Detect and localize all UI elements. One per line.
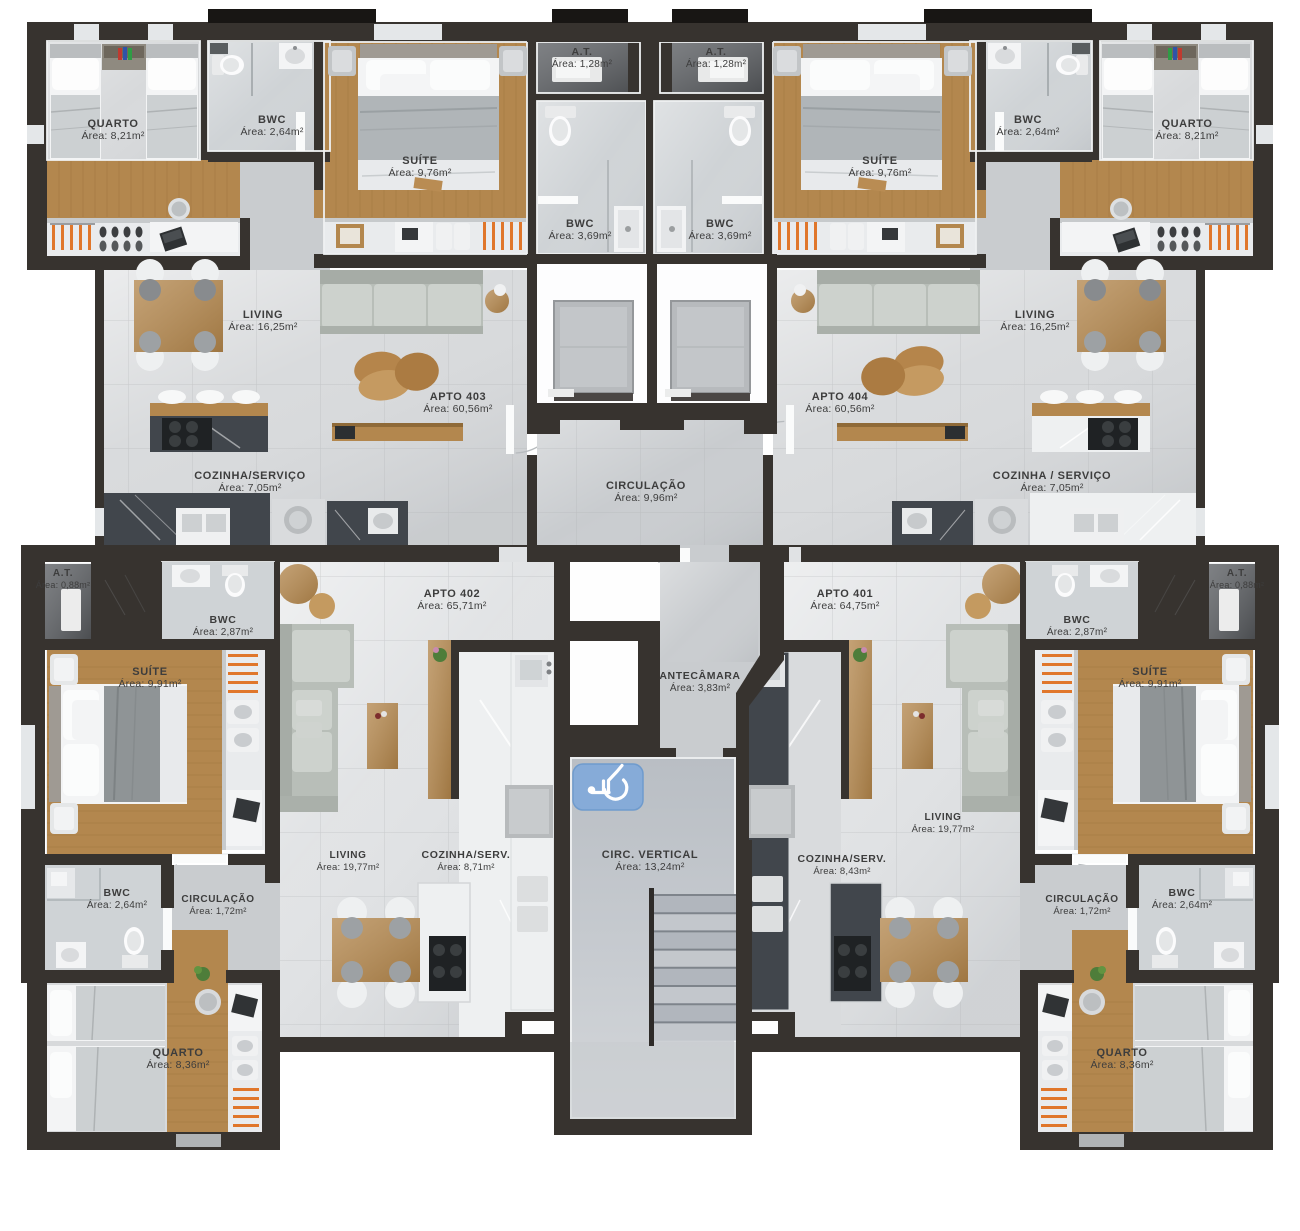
svg-text:APTO 402: APTO 402	[424, 588, 481, 600]
svg-text:Área: 2,87m²: Área: 2,87m²	[1047, 625, 1108, 638]
svg-text:LIVING: LIVING	[243, 309, 283, 321]
svg-text:Área: 8,43m²: Área: 8,43m²	[813, 866, 870, 877]
svg-text:Área: 0,88m²: Área: 0,88m²	[36, 580, 90, 590]
svg-text:ANTECÂMARA: ANTECÂMARA	[659, 669, 740, 682]
svg-text:QUARTO: QUARTO	[87, 118, 138, 130]
svg-text:Área: 1,28m²: Área: 1,28m²	[552, 57, 613, 70]
svg-text:Área: 8,21m²: Área: 8,21m²	[81, 129, 144, 142]
svg-text:BWC: BWC	[1169, 887, 1196, 899]
svg-text:Área: 7,05m²: Área: 7,05m²	[1020, 481, 1083, 494]
svg-text:SUÍTE: SUÍTE	[862, 154, 897, 167]
svg-text:A.T.: A.T.	[53, 568, 73, 579]
svg-text:QUARTO: QUARTO	[152, 1047, 203, 1059]
svg-text:Área: 2,64m²: Área: 2,64m²	[996, 125, 1059, 138]
svg-text:BWC: BWC	[258, 114, 286, 126]
svg-text:Área: 60,56m²: Área: 60,56m²	[805, 402, 874, 415]
svg-text:Área: 8,36m²: Área: 8,36m²	[146, 1058, 209, 1071]
svg-text:CIRCULAÇÃO: CIRCULAÇÃO	[606, 479, 686, 492]
svg-text:Área: 8,36m²: Área: 8,36m²	[1090, 1058, 1153, 1071]
svg-text:Área: 3,69m²: Área: 3,69m²	[688, 229, 751, 242]
svg-text:Área: 19,77m²: Área: 19,77m²	[317, 862, 380, 873]
svg-text:APTO 403: APTO 403	[430, 391, 487, 403]
svg-text:LIVING: LIVING	[330, 850, 367, 861]
svg-text:BWC: BWC	[210, 614, 237, 626]
svg-text:Área: 16,25m²: Área: 16,25m²	[228, 320, 297, 333]
svg-text:Área: 65,71m²: Área: 65,71m²	[417, 599, 486, 612]
svg-text:A.T.: A.T.	[1227, 568, 1247, 579]
svg-text:COZINHA/SERVIÇO: COZINHA/SERVIÇO	[194, 470, 305, 482]
svg-text:BWC: BWC	[1064, 614, 1091, 626]
svg-text:Área: 0,88m²: Área: 0,88m²	[1210, 580, 1264, 590]
svg-text:Área: 8,71m²: Área: 8,71m²	[437, 862, 494, 873]
svg-text:COZINHA / SERVIÇO: COZINHA / SERVIÇO	[993, 470, 1111, 482]
svg-text:Área: 7,05m²: Área: 7,05m²	[218, 481, 281, 494]
svg-text:CIRC. VERTICAL: CIRC. VERTICAL	[602, 849, 698, 861]
svg-text:Área: 60,56m²: Área: 60,56m²	[423, 402, 492, 415]
svg-text:Área: 9,76m²: Área: 9,76m²	[388, 166, 451, 179]
svg-text:Área: 2,64m²: Área: 2,64m²	[240, 125, 303, 138]
svg-text:LIVING: LIVING	[1015, 309, 1055, 321]
svg-text:SUÍTE: SUÍTE	[402, 154, 437, 167]
svg-text:QUARTO: QUARTO	[1161, 118, 1212, 130]
svg-text:Área: 9,91m²: Área: 9,91m²	[1118, 677, 1181, 690]
svg-text:Área: 64,75m²: Área: 64,75m²	[810, 599, 879, 612]
svg-text:QUARTO: QUARTO	[1096, 1047, 1147, 1059]
svg-text:Área: 2,64m²: Área: 2,64m²	[87, 898, 148, 911]
svg-text:COZINHA/SERV.: COZINHA/SERV.	[798, 853, 887, 865]
svg-text:Área: 19,77m²: Área: 19,77m²	[912, 824, 975, 835]
svg-text:Área: 1,72m²: Área: 1,72m²	[1053, 906, 1110, 917]
svg-text:Área: 9,96m²: Área: 9,96m²	[614, 491, 677, 504]
svg-text:Área: 3,69m²: Área: 3,69m²	[548, 229, 611, 242]
svg-text:A.T.: A.T.	[571, 46, 592, 58]
svg-text:APTO 404: APTO 404	[812, 391, 869, 403]
svg-text:SUÍTE: SUÍTE	[132, 665, 167, 678]
svg-text:Área: 8,21m²: Área: 8,21m²	[1155, 129, 1218, 142]
svg-text:Área: 1,72m²: Área: 1,72m²	[189, 906, 246, 917]
svg-text:Área: 1,28m²: Área: 1,28m²	[686, 57, 747, 70]
svg-text:APTO 401: APTO 401	[817, 588, 874, 600]
svg-text:COZINHA/SERV.: COZINHA/SERV.	[422, 849, 511, 861]
svg-text:SUÍTE: SUÍTE	[1132, 665, 1167, 678]
svg-text:Área: 2,87m²: Área: 2,87m²	[193, 625, 254, 638]
svg-text:BWC: BWC	[706, 218, 734, 230]
svg-text:Área: 16,25m²: Área: 16,25m²	[1000, 320, 1069, 333]
svg-text:Área: 9,91m²: Área: 9,91m²	[118, 677, 181, 690]
svg-text:Área: 9,76m²: Área: 9,76m²	[848, 166, 911, 179]
svg-text:BWC: BWC	[566, 218, 594, 230]
svg-text:BWC: BWC	[1014, 114, 1042, 126]
svg-text:CIRCULAÇÃO: CIRCULAÇÃO	[1045, 892, 1118, 905]
svg-text:Área: 13,24m²: Área: 13,24m²	[615, 860, 684, 873]
svg-text:LIVING: LIVING	[925, 812, 962, 823]
svg-text:CIRCULAÇÃO: CIRCULAÇÃO	[181, 892, 254, 905]
svg-text:Área: 2,64m²: Área: 2,64m²	[1152, 898, 1213, 911]
svg-text:Área: 3,83m²: Área: 3,83m²	[670, 681, 731, 694]
svg-text:A.T.: A.T.	[705, 46, 726, 58]
svg-text:BWC: BWC	[104, 887, 131, 899]
